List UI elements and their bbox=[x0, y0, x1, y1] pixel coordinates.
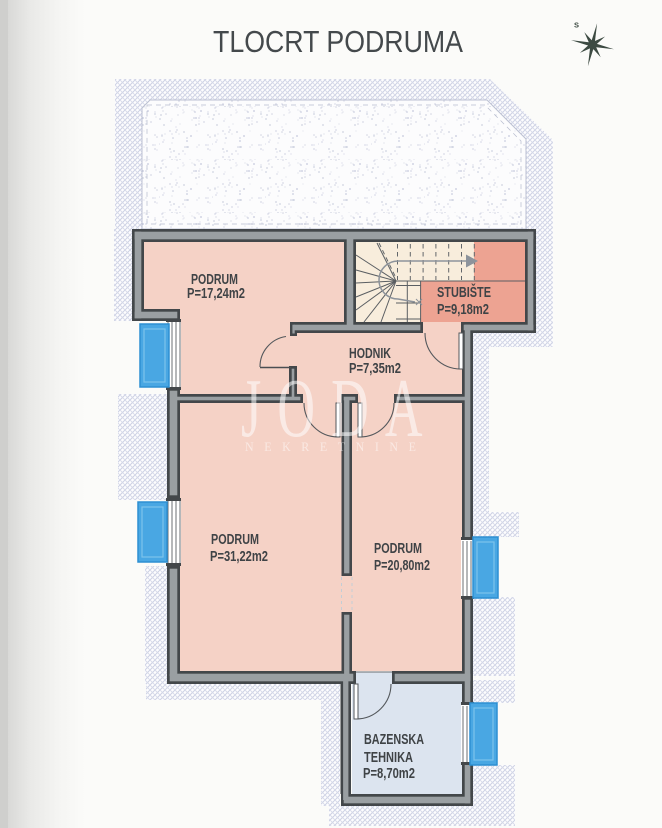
svg-text:P=31,22m2: P=31,22m2 bbox=[210, 549, 268, 565]
svg-text:TEHNIKA: TEHNIKA bbox=[364, 750, 413, 766]
svg-text:S: S bbox=[574, 21, 579, 30]
svg-text:P=9,18m2: P=9,18m2 bbox=[437, 302, 489, 318]
svg-text:P=17,24m2: P=17,24m2 bbox=[187, 286, 245, 302]
svg-text:P=20,80m2: P=20,80m2 bbox=[374, 558, 430, 574]
svg-text:BAZENSKA: BAZENSKA bbox=[364, 732, 424, 748]
svg-text:PODRUM: PODRUM bbox=[211, 532, 259, 548]
svg-text:TLOCRT PODRUMA: TLOCRT PODRUMA bbox=[213, 24, 463, 59]
svg-text:NEKRETNINE: NEKRETNINE bbox=[245, 440, 427, 455]
svg-text:HODNIK: HODNIK bbox=[349, 346, 391, 362]
svg-text:P=8,70m2: P=8,70m2 bbox=[363, 766, 415, 782]
svg-text:STUBIŠTE: STUBIŠTE bbox=[437, 283, 491, 301]
svg-text:PODRUM: PODRUM bbox=[374, 541, 422, 557]
